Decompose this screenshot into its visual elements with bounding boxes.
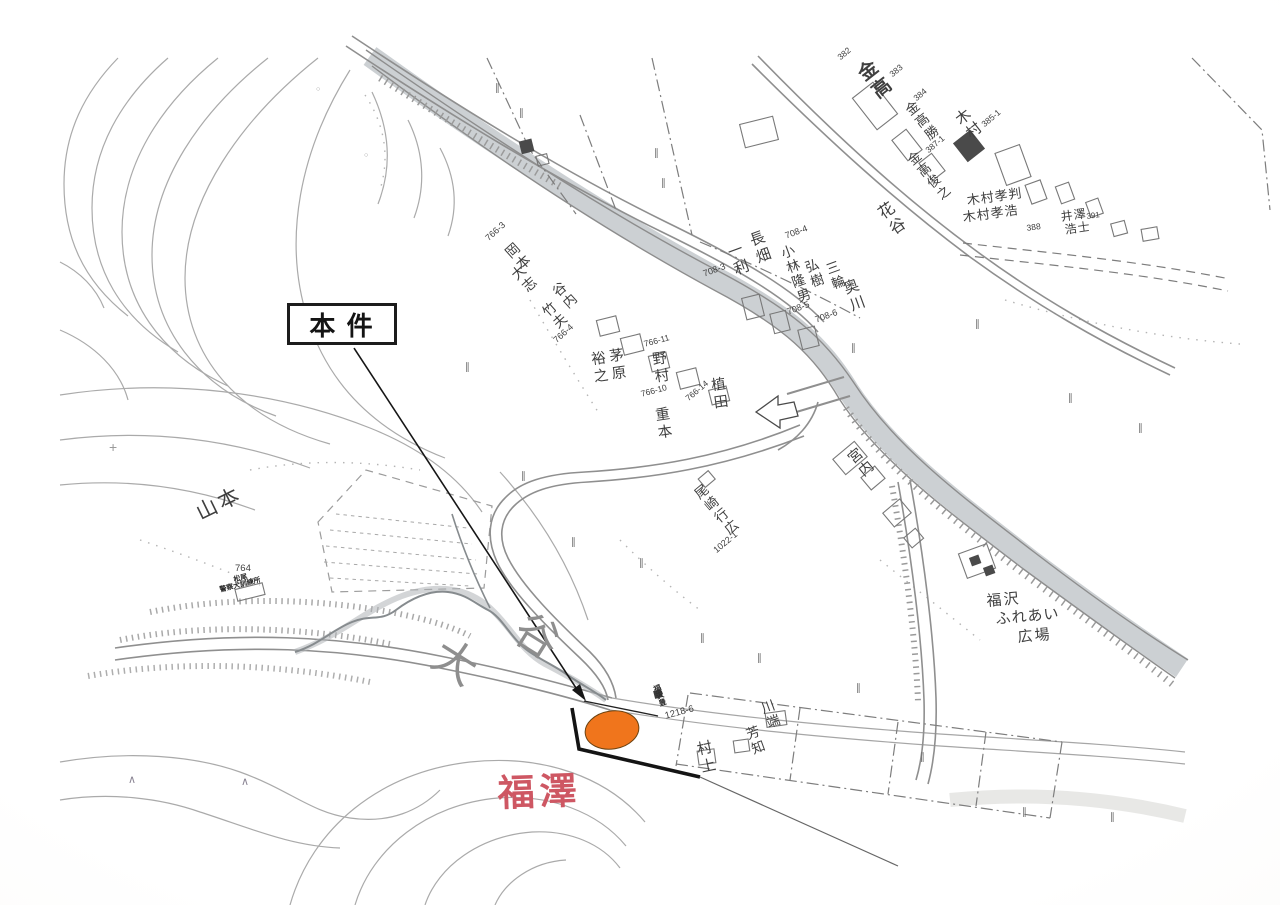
vegetation-symbol: ∥ <box>1022 808 1027 818</box>
parcel-number: 385-1 <box>980 108 1002 129</box>
owner-name: 金高 <box>852 58 895 105</box>
circle-symbol: ○ <box>364 152 368 159</box>
owner-name: 川端 <box>757 698 781 732</box>
vegetation-symbol: ∥ <box>571 538 576 548</box>
owner-name: 重本 <box>652 406 672 443</box>
owner-name: 野村 <box>649 350 669 387</box>
place-name-yamamoto: 山本 <box>193 484 246 525</box>
parcel-number: 766-11 <box>643 333 670 348</box>
parcel-number: 383 <box>888 63 905 79</box>
vegetation-symbol: ∥ <box>1068 394 1073 404</box>
owner-name: 花谷 <box>872 200 907 241</box>
parcel-number: 382 <box>836 46 853 62</box>
owner-name: 大志 <box>508 262 540 296</box>
vegetation-symbol: ∥ <box>661 179 666 189</box>
parcel-number: 708-3 <box>702 262 727 279</box>
owner-name: 宮内 <box>843 446 876 481</box>
triangle-symbol: ∧ <box>241 777 249 788</box>
vegetation-symbol: ∥ <box>639 559 644 569</box>
owner-name: 村上 <box>694 739 717 777</box>
vegetation-symbol: ∥ <box>975 320 980 330</box>
parcel-number: 708-6 <box>814 308 839 325</box>
parcel-number: 766-10 <box>640 383 668 398</box>
parcel-number: 388 <box>1026 222 1041 233</box>
vegetation-symbol: ∥ <box>856 684 861 694</box>
spot-elevation: 764 <box>235 564 251 574</box>
owner-name: 金高俊之 <box>904 149 953 204</box>
owner-name: 木村 <box>951 106 984 142</box>
parcel-number: 766-3 <box>484 221 507 243</box>
parcel-number: 1022-1 <box>712 530 739 555</box>
valley-name-char: 大 <box>424 632 486 694</box>
parcel-number: 1218-6 <box>664 704 695 721</box>
owner-name: 一利 <box>724 241 751 280</box>
owner-name: 長畑 <box>746 229 773 268</box>
parcel-number: 766-14 <box>684 379 710 403</box>
red-place-label-fukuzawa: 福澤 <box>497 772 582 813</box>
vegetation-symbol: ∥ <box>521 472 526 482</box>
vegetation-symbol: ∥ <box>1138 424 1143 434</box>
facility-name-plaza: 福沢 <box>986 591 1021 609</box>
owner-name: 浩士 <box>1064 220 1091 236</box>
vegetation-symbol: ∥ <box>519 109 524 119</box>
triangle-symbol: ∧ <box>128 775 136 786</box>
owner-name: 福沢豊 <box>652 683 667 707</box>
vegetation-symbol: ∥ <box>700 634 705 644</box>
vegetation-symbol: ∥ <box>851 344 856 354</box>
owner-name: 茅原 <box>606 347 626 384</box>
vegetation-symbol: ∥ <box>920 753 925 763</box>
vegetation-symbol: ∥ <box>465 363 470 373</box>
facility-name-plaza: ふれあい <box>995 606 1060 627</box>
owner-name: 芳知 <box>742 724 766 758</box>
owner-name: 植田 <box>708 376 728 413</box>
parcel-number: 708-5 <box>786 300 811 317</box>
subject-annotation-box: 本 件 <box>287 303 397 345</box>
circle-symbol: ○ <box>316 86 320 93</box>
cross-symbol: + <box>109 440 117 455</box>
vegetation-symbol: ∥ <box>654 149 659 159</box>
vegetation-symbol: ∥ <box>757 654 762 664</box>
vegetation-symbol: ∥ <box>1110 813 1115 823</box>
owner-name: 奥川 <box>840 277 867 316</box>
cadastral-map-photo: 大谷山本福澤福沢ふれあい広場金高382383金高勝384木村385-1金高俊之3… <box>0 0 1280 905</box>
owner-name: 裕之 <box>588 350 608 387</box>
vegetation-symbol: ∥ <box>495 84 500 94</box>
map-labels-layer: 大谷山本福澤福沢ふれあい広場金高382383金高勝384木村385-1金高俊之3… <box>0 0 1280 905</box>
facility-name-plaza: 広場 <box>1017 627 1052 645</box>
valley-name-char: 谷 <box>506 606 568 668</box>
parcel-number: 708-4 <box>784 224 809 241</box>
